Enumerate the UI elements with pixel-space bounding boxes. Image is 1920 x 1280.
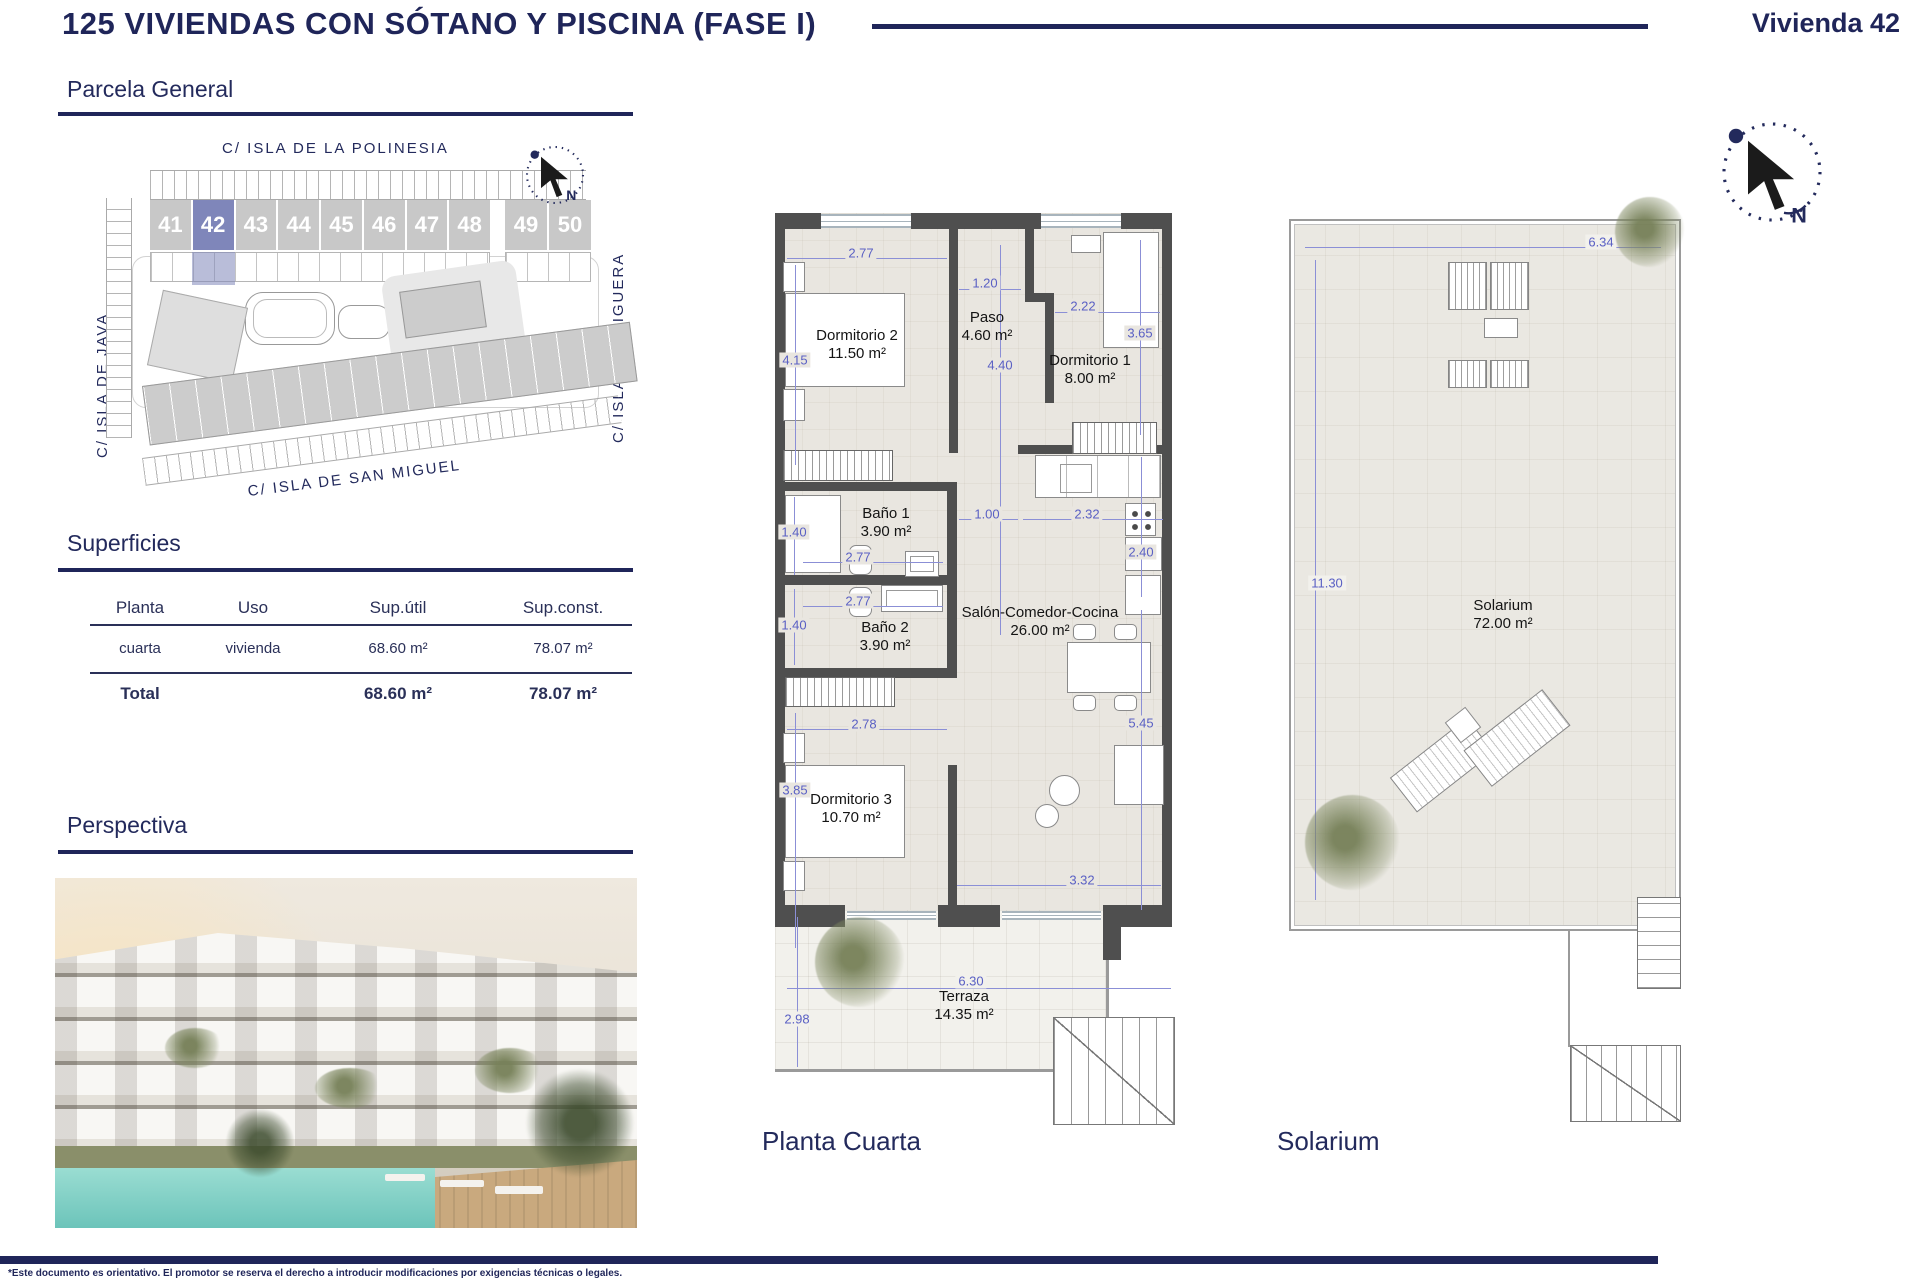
room-name: Paso — [962, 309, 1013, 327]
total-sup-const: 78.07 m² — [529, 684, 597, 704]
terrace-strip-2 — [505, 252, 591, 282]
unit-47: 47 — [407, 200, 448, 250]
kitchen-sink-icon — [1060, 464, 1092, 493]
nightstand-icon — [1071, 235, 1101, 253]
north-compass-icon: N — [520, 140, 590, 210]
chair-icon — [1114, 695, 1137, 711]
building-row-41-48: 41 42 43 44 45 46 47 48 — [150, 200, 490, 250]
stairs — [1570, 1045, 1681, 1122]
dim-label: 2.32 — [1071, 507, 1102, 522]
floor-plan-planta-cuarta: 2.77 4.15 1.20 4.40 2.22 3.65 1.40 2.77 … — [773, 205, 1179, 1130]
nightstand-icon — [783, 262, 805, 292]
compass-n-label: N — [1791, 202, 1807, 227]
unit-title: Vivienda 42 — [1660, 8, 1900, 39]
dim-label: 1.40 — [778, 618, 809, 633]
nightstand-icon — [783, 861, 805, 891]
pool-small — [338, 305, 390, 339]
plan-sheet: 125 VIVIENDAS CON SÓTANO Y PISCINA (FASE… — [0, 0, 1920, 1280]
plan-wall — [1103, 905, 1121, 960]
room-label-bano-1: Baño 1 3.90 m² — [861, 505, 912, 541]
dim-label: 4.15 — [779, 353, 810, 368]
plan-wall — [949, 213, 958, 453]
cell-planta: cuarta — [119, 640, 161, 657]
palm-tree-icon — [1615, 197, 1685, 267]
render-lounger-2 — [440, 1180, 484, 1187]
room-label-paso: Paso 4.60 m² — [962, 309, 1013, 345]
stairs — [1053, 1017, 1175, 1125]
room-area: 3.90 m² — [861, 523, 912, 541]
dim-line — [1141, 457, 1142, 597]
room-name: Dormitorio 2 — [816, 327, 898, 345]
compass-n-label: N — [566, 187, 576, 203]
wardrobe-icon — [785, 677, 895, 707]
dim-label: 2.40 — [1125, 545, 1156, 560]
footer-disclaimer: *Este documento es orientativo. El promo… — [8, 1268, 622, 1279]
sunbed-icon — [1490, 360, 1529, 388]
street-label-top: C/ ISLA DE LA POLINESIA — [222, 140, 449, 157]
wardrobe-icon — [1072, 422, 1157, 454]
total-sup-util: 68.60 m² — [364, 684, 432, 704]
window — [1041, 214, 1121, 228]
dim-label: 11.30 — [1308, 576, 1346, 591]
room-label-dormitorio-1: Dormitorio 1 8.00 m² — [1049, 352, 1131, 388]
solarium-caption: Solarium — [1277, 1126, 1380, 1157]
cell-sup-const: 78.07 m² — [533, 640, 592, 657]
room-name: Baño 1 — [861, 505, 912, 523]
cell-uso: vivienda — [225, 640, 280, 657]
dim-label: 6.34 — [1585, 235, 1616, 250]
room-label-solarium: Solarium 72.00 m² — [1473, 597, 1532, 633]
room-area: 11.50 m² — [816, 345, 898, 363]
room-name: Dormitorio 3 — [810, 791, 892, 809]
sink-icon — [905, 551, 939, 577]
window — [821, 214, 911, 228]
room-area: 8.00 m² — [1049, 370, 1131, 388]
sunbed-icon — [1448, 262, 1487, 310]
plan-wall — [948, 765, 957, 907]
north-compass-icon: N — [1712, 112, 1832, 232]
solarium-plan: 6.34 11.30 Solarium 72.00 m² — [1285, 215, 1687, 1130]
render-palm-tree-1 — [525, 1068, 635, 1178]
footer-bar — [0, 1256, 1658, 1264]
room-label-dormitorio-2: Dormitorio 2 11.50 m² — [816, 327, 898, 363]
room-label-salon: Salón-Comedor-Cocina 26.00 m² — [962, 604, 1119, 640]
side-table-icon — [1035, 804, 1059, 828]
room-label-bano-2: Baño 2 3.90 m² — [860, 619, 911, 655]
col-header-uso: Uso — [238, 598, 268, 618]
room-name: Terraza — [934, 988, 993, 1006]
unit-44: 44 — [278, 200, 319, 250]
page-title: 125 VIVIENDAS CON SÓTANO Y PISCINA (FASE… — [62, 6, 816, 42]
dim-label: 2.77 — [842, 550, 873, 565]
kitchen-counter-icon — [1035, 455, 1161, 498]
total-label: Total — [120, 684, 159, 704]
col-header-sup-const: Sup.const. — [523, 598, 603, 618]
plan-wall — [775, 213, 785, 913]
render-balcony-plants-2 — [315, 1068, 385, 1108]
table-total-line — [90, 672, 632, 674]
dim-label: 3.85 — [779, 783, 810, 798]
col-header-sup-util: Sup.útil — [370, 598, 427, 618]
dim-label: 4.40 — [984, 358, 1015, 373]
dim-label: 1.20 — [969, 276, 1000, 291]
sunbed-icon — [1490, 262, 1529, 310]
room-name: Baño 2 — [860, 619, 911, 637]
room-name: Dormitorio 1 — [1049, 352, 1131, 370]
site-plan: C/ ISLA DE LA POLINESIA C/ ISLA DE JAVA … — [92, 128, 637, 533]
sunbed-icon — [1448, 360, 1487, 388]
dim-label: 2.77 — [842, 594, 873, 609]
room-area: 14.35 m² — [934, 1006, 993, 1024]
dim-label: 1.00 — [971, 507, 1002, 522]
perspective-render-image — [55, 878, 637, 1228]
floor-plan-caption: Planta Cuarta — [762, 1126, 921, 1157]
dim-line — [957, 885, 1161, 886]
dim-label: 1.40 — [778, 525, 809, 540]
room-area: 72.00 m² — [1473, 615, 1532, 633]
title-rule — [872, 24, 1648, 29]
dim-label: 2.22 — [1067, 299, 1098, 314]
unit-46: 46 — [364, 200, 405, 250]
unit-45: 45 — [321, 200, 362, 250]
dim-label: 2.78 — [848, 717, 879, 732]
superficies-rule — [58, 568, 633, 572]
stairs — [1637, 897, 1681, 989]
wardrobe-icon — [783, 450, 893, 481]
render-palm-tree-2 — [225, 1108, 295, 1178]
render-lounger-1 — [385, 1174, 425, 1181]
room-area: 10.70 m² — [810, 809, 892, 827]
dim-label: 3.32 — [1066, 873, 1097, 888]
stair-wall-line — [1568, 929, 1570, 1047]
room-area: 4.60 m² — [962, 327, 1013, 345]
palm-tree-icon — [1305, 795, 1400, 890]
dim-label: 3.65 — [1124, 326, 1155, 341]
plan-wall — [938, 905, 1000, 927]
dim-label: 6.30 — [955, 974, 986, 989]
cell-sup-util: 68.60 m² — [368, 640, 427, 657]
terrace-glass-door — [1002, 911, 1101, 920]
sofa-icon — [1114, 745, 1164, 805]
plan-wall — [1162, 213, 1172, 913]
nightstand-icon — [783, 733, 805, 763]
chair-icon — [1073, 695, 1096, 711]
plan-wall — [775, 482, 957, 491]
render-balcony-plants-3 — [475, 1048, 545, 1093]
dim-label: 2.77 — [845, 246, 876, 261]
section-perspectiva: Perspectiva — [67, 812, 187, 839]
col-header-planta: Planta — [116, 598, 164, 618]
unit-43: 43 — [236, 200, 277, 250]
room-name: Solarium — [1473, 597, 1532, 615]
dim-line — [1000, 245, 1001, 635]
room-area: 3.90 m² — [860, 637, 911, 655]
dim-label: 2.98 — [781, 1012, 812, 1027]
parking-strip-left — [106, 198, 132, 438]
unit-42-highlighted[interactable]: 42 — [193, 200, 234, 250]
plan-wall — [911, 213, 1041, 229]
perspectiva-rule — [58, 850, 633, 854]
unit-42-terrace-highlight — [192, 252, 235, 285]
nightstand-icon — [783, 389, 805, 421]
unit-41: 41 — [150, 200, 191, 250]
render-balcony-plants-1 — [165, 1028, 225, 1068]
dim-line — [797, 917, 798, 1067]
palm-tree-icon — [815, 917, 905, 1007]
table-header-line — [90, 624, 632, 626]
dim-label: 5.45 — [1125, 716, 1156, 731]
dining-table-icon — [1067, 642, 1151, 693]
unit-48: 48 — [449, 200, 490, 250]
plan-wall — [1025, 213, 1034, 298]
render-lounger-3 — [495, 1186, 543, 1194]
section-parcela-general: Parcela General — [67, 76, 233, 103]
pool-inner — [253, 299, 327, 338]
dim-line — [1141, 610, 1142, 910]
room-label-dormitorio-3: Dormitorio 3 10.70 m² — [810, 791, 892, 827]
section-superficies: Superficies — [67, 530, 181, 557]
render-pool — [55, 1168, 435, 1228]
room-label-terraza: Terraza 14.35 m² — [934, 988, 993, 1024]
room-name: Salón-Comedor-Cocina — [962, 604, 1119, 622]
bathtub-icon — [881, 585, 943, 612]
room-area: 26.00 m² — [962, 622, 1119, 640]
armchair-icon — [1125, 575, 1161, 615]
side-table-icon — [1049, 775, 1080, 806]
table-icon — [1484, 318, 1518, 338]
dim-line — [795, 713, 796, 948]
parcela-rule — [58, 112, 633, 116]
